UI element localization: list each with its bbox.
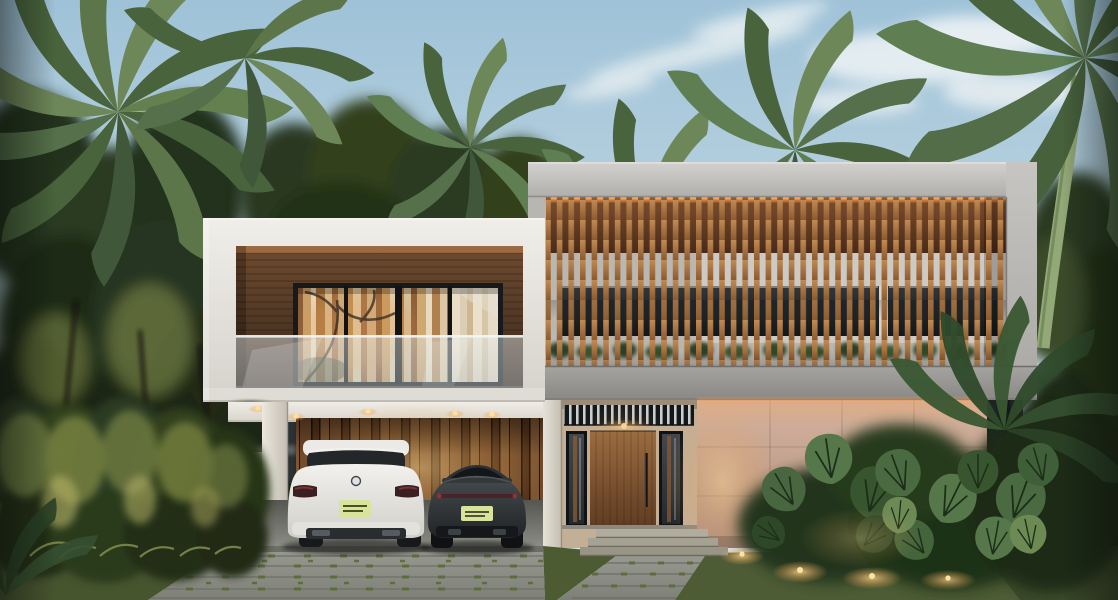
architectural-rendering — [0, 0, 1118, 600]
balcony-glass-railing — [236, 335, 523, 388]
entry-door — [590, 431, 656, 527]
balcony-parapet — [203, 388, 545, 402]
vignette-left — [0, 0, 56, 600]
vignette-right — [1062, 0, 1118, 600]
concrete-fascia-top — [528, 162, 1037, 197]
scene-canvas — [0, 0, 1118, 600]
sportscar-lightbar — [436, 494, 518, 498]
upper-left-volume — [203, 218, 545, 402]
sportscar-license-plate — [461, 506, 493, 521]
suv-license-plate — [339, 500, 371, 517]
suv-badge — [352, 477, 361, 486]
entry-sidelight-left — [566, 431, 587, 527]
entry-steps — [580, 529, 728, 556]
